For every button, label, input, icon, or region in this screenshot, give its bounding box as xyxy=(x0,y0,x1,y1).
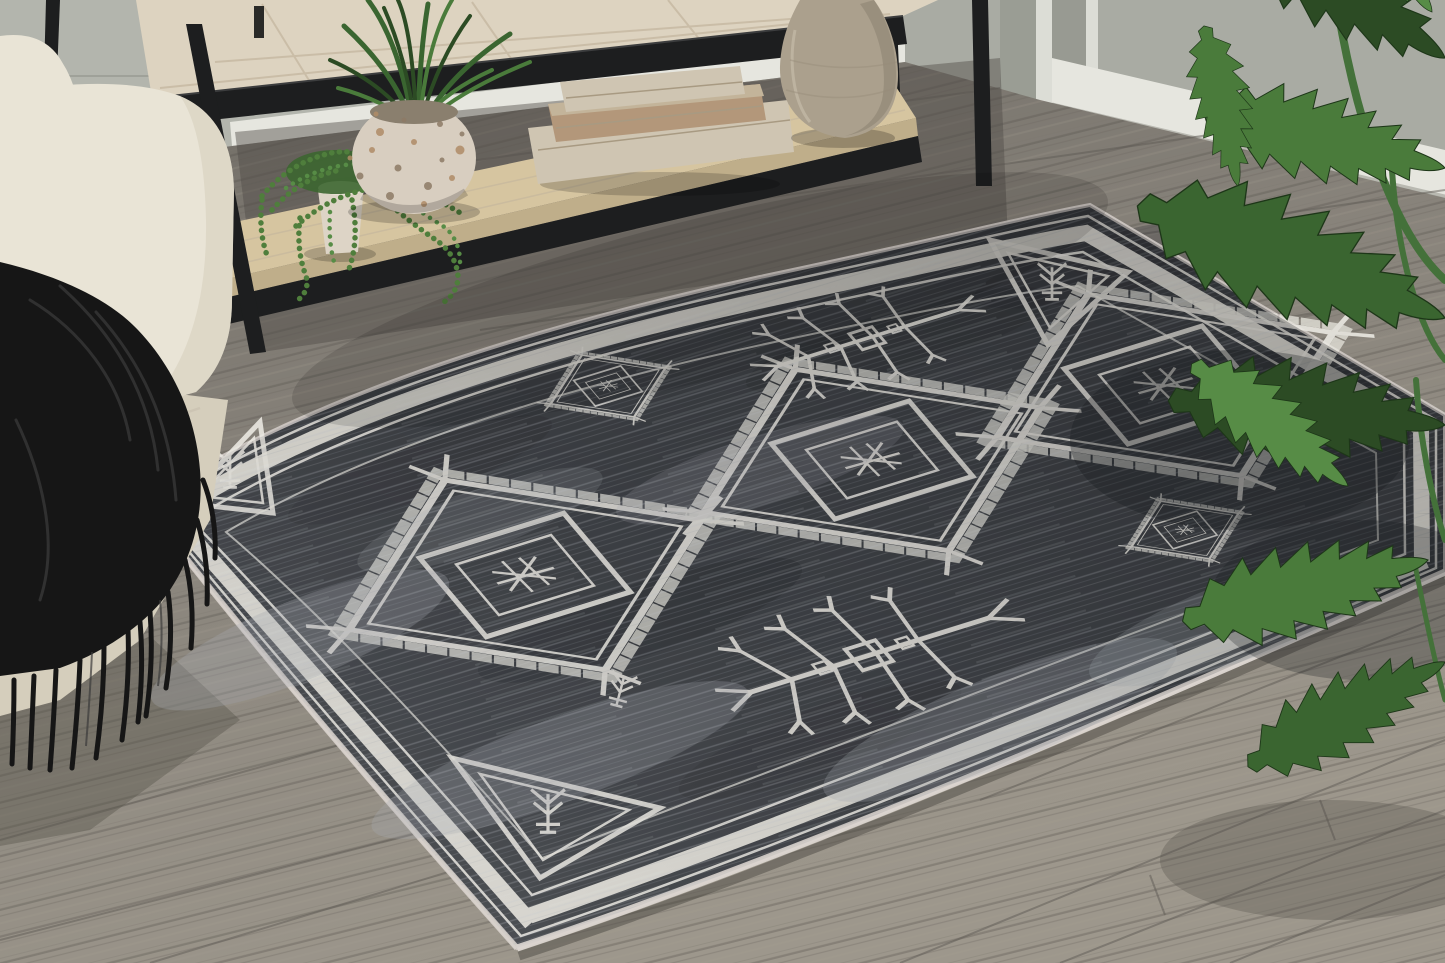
room-photo: Living room lifestyle photo of a tribal-… xyxy=(0,0,1445,963)
drawer-gap xyxy=(254,6,264,38)
living-room-scene: Living room lifestyle photo of a tribal-… xyxy=(0,0,1445,963)
pot-opening xyxy=(370,100,458,124)
door-casing-left xyxy=(1036,0,1052,108)
